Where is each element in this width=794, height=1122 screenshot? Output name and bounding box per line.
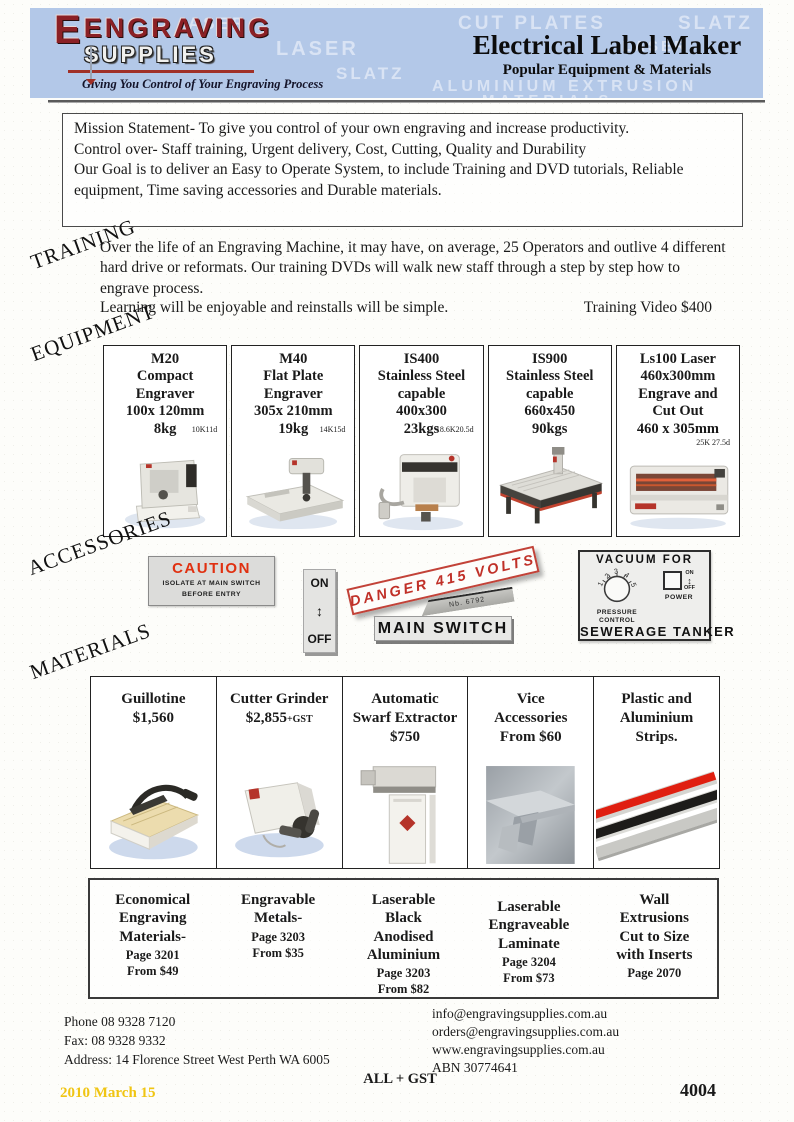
catalog-reference-box: Economical Engraving Materials- Page 320…: [88, 878, 719, 999]
material-title: Cutter Grinder $2,855+GST: [217, 690, 342, 728]
catalog-item-title: Laserable Black Anodised Aluminium: [341, 891, 466, 964]
date-stamp: 2010 March 15: [60, 1085, 156, 1102]
equipment-title: Ls100 Laser 460x300mm Engrave and Cut Ou…: [617, 351, 739, 438]
catalog-item-laserable-laminate: Laserable Engraveable Laminate Page 3204…: [466, 891, 591, 997]
cutter-grinder-image: [219, 764, 340, 866]
catalog-item-title: Wall Extrusions Cut to Size with Inserts: [592, 891, 717, 964]
page-subtitle: Popular Equipment & Materials: [432, 62, 763, 79]
page-title-block: Electrical Label Maker Popular Equipment…: [432, 30, 763, 79]
section-label-materials: MATERIALS: [26, 618, 154, 685]
power-switch-icon: [663, 571, 682, 590]
mission-statement-box: Mission Statement- To give you control o…: [62, 113, 743, 227]
catalog-page: ASER LASER SLATZ CUT PLATES SLATZ LASER …: [0, 0, 794, 1122]
watermark-text: MATERIALS: [482, 92, 613, 98]
dial-number: 3: [614, 567, 619, 575]
cutter-grinder-name: Cutter Grinder: [217, 690, 342, 709]
catalog-item-laserable-black-aluminium: Laserable Black Anodised Aluminium Page …: [341, 891, 466, 997]
ls100-laser-image: [620, 447, 736, 533]
logo-underline: [68, 70, 254, 73]
caution-body: ISOLATE AT MAIN SWITCH BEFORE ENTRY: [149, 579, 274, 601]
equipment-card-is400: IS400 Stainless Steel capable 400x300 23…: [359, 345, 483, 537]
dial-number: 5: [629, 582, 638, 589]
swarf-extractor-image: [345, 764, 466, 866]
material-title: Automatic Swarf Extractor $750: [343, 690, 468, 746]
vice-accessories-image: [470, 764, 591, 866]
caution-title: CAUTION: [149, 560, 274, 577]
plastic-aluminium-strips-image: [596, 764, 717, 866]
main-switch-label-sample: MAIN SWITCH: [374, 616, 512, 641]
catalog-item-title: Economical Engraving Materials-: [90, 891, 215, 946]
catalog-item-engravable-metals: Engravable Metals- Page 3203 From $35: [215, 891, 340, 997]
sewerage-tanker-text: SEWERAGE TANKER: [580, 624, 709, 639]
material-card-swarf-extractor: Automatic Swarf Extractor $750: [342, 676, 469, 869]
equipment-card-ls100: Ls100 Laser 460x300mm Engrave and Cut Ou…: [616, 345, 740, 537]
vacuum-panel-label-sample: VACUUM FOR 1 2 3 4 5: [578, 550, 711, 641]
equipment-card-m40: M40 Flat Plate Engraver 305x 210mm 19kg …: [231, 345, 355, 537]
material-title: Plastic and Aluminium Strips.: [594, 690, 719, 746]
power-switch-block: ON ↕ OFF POWER: [656, 564, 702, 624]
material-card-vice-accessories: Vice Accessories From $60: [467, 676, 594, 869]
catalog-item-detail: Page 2070: [592, 965, 717, 981]
gst-note: ALL + GST: [300, 1071, 500, 1088]
price-text: $2,855: [246, 710, 287, 726]
material-card-strips: Plastic and Aluminium Strips.: [593, 676, 720, 869]
catalog-item-title: Laserable Engraveable Laminate: [466, 898, 591, 953]
equipment-card-is900: IS900 Stainless Steel capable 660x450 90…: [488, 345, 612, 537]
page-number: 4004: [680, 1080, 716, 1101]
catalog-item-title: Engravable Metals-: [215, 891, 340, 928]
logo-tagline: Giving You Control of Your Engraving Pro…: [82, 77, 323, 92]
power-caption: POWER: [656, 594, 702, 601]
logo-big-e: E: [54, 8, 84, 52]
logo-engraving-text: EENGRAVING: [54, 13, 323, 44]
catalog-item-economical-materials: Economical Engraving Materials- Page 320…: [90, 891, 215, 997]
is400-engraver-image: [363, 447, 479, 533]
off-text: OFF: [308, 632, 332, 646]
m40-engraver-image: [235, 447, 351, 533]
material-title: Guillotine $1,560: [91, 690, 216, 728]
header-banner: ASER LASER SLATZ CUT PLATES SLATZ LASER …: [30, 8, 763, 98]
training-tagline-row: Learning will be enjoyable and reinstall…: [100, 299, 712, 317]
cutter-grinder-price: $2,855+GST: [217, 709, 342, 728]
logo-supplies-text: SUPPLIES: [84, 42, 323, 68]
gst-suffix: +GST: [287, 714, 313, 725]
contact-details-left: Phone 08 9328 7120 Fax: 08 9328 9332 Add…: [64, 1012, 330, 1069]
training-paragraph: Over the life of an Engraving Machine, i…: [100, 238, 765, 299]
equipment-row: M20 Compact Engraver 100x 120mm 8kg 10K1…: [103, 345, 740, 537]
power-on-off-arrows: ON ↕ OFF: [684, 571, 695, 591]
company-logo: EENGRAVING SUPPLIES Giving You Control o…: [54, 13, 323, 92]
caution-label-sample: CAUTION ISOLATE AT MAIN SWITCH BEFORE EN…: [148, 556, 275, 606]
pressure-dial-block: 1 2 3 4 5 PRESSURE CONTROL: [587, 564, 647, 624]
material-title: Vice Accessories From $60: [468, 690, 593, 746]
vacuum-middle: 1 2 3 4 5 PRESSURE CONTROL ON ↕ OFF: [580, 564, 709, 624]
guillotine-image: [93, 764, 214, 866]
up-down-arrow-icon: ↕: [316, 603, 323, 619]
on-text: ON: [311, 576, 329, 590]
page-title: Electrical Label Maker: [432, 30, 763, 61]
watermark-text: SLATZ: [336, 64, 405, 84]
engraver-spindle-icon: [90, 47, 92, 81]
material-card-cutter-grinder: Cutter Grinder $2,855+GST: [216, 676, 343, 869]
banner-divider-rule: [48, 100, 765, 103]
catalog-item-detail: Page 3203 From $82: [341, 965, 466, 998]
pressure-dial-icon: 1 2 3 4 5: [588, 564, 646, 608]
pressure-control-caption: PRESSURE CONTROL: [587, 609, 647, 624]
logo-line1-text: ENGRAVING: [84, 13, 273, 43]
on-off-label-sample: ON ↕ OFF: [303, 569, 336, 653]
contact-details-right: info@engravingsupplies.com.au orders@eng…: [432, 1005, 619, 1077]
catalog-item-detail: Page 3201 From $49: [90, 947, 215, 980]
catalog-item-detail: Page 3203 From $35: [215, 929, 340, 962]
catalog-item-detail: Page 3204 From $73: [466, 954, 591, 987]
material-card-guillotine: Guillotine $1,560: [90, 676, 217, 869]
training-video-price: Training Video $400: [584, 299, 712, 317]
is900-engraver-image: [492, 447, 608, 533]
materials-row: Guillotine $1,560 Cutter Grinder $2: [90, 676, 720, 869]
power-off-text: OFF: [684, 586, 695, 592]
catalog-item-wall-extrusions: Wall Extrusions Cut to Size with Inserts…: [592, 891, 717, 997]
